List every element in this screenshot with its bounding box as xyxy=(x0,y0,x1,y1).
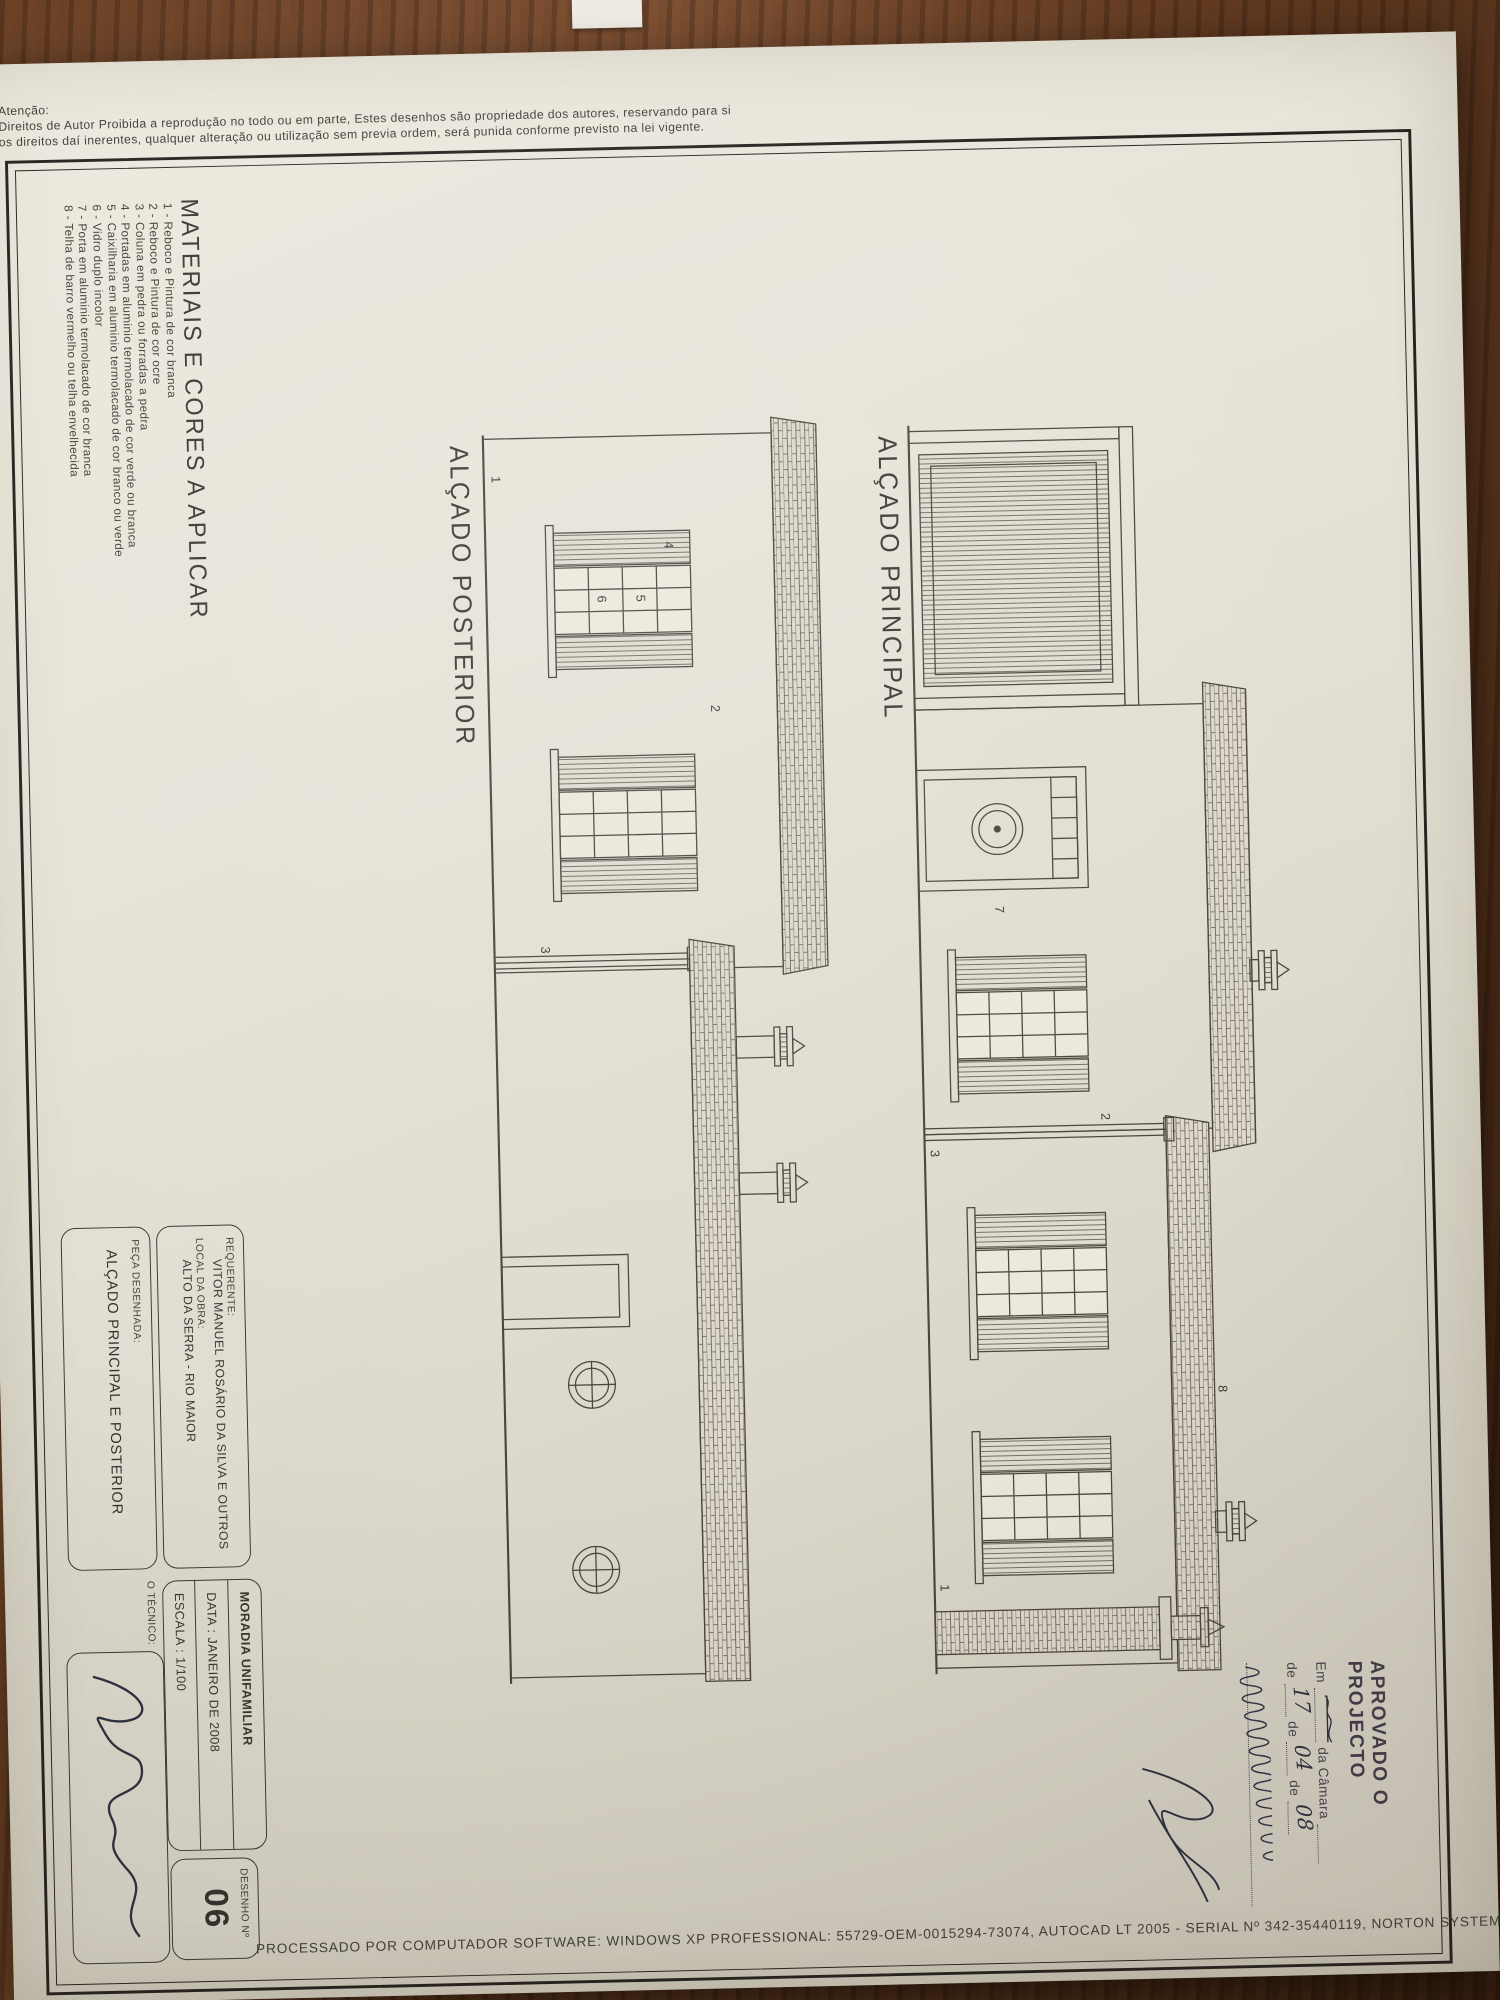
project-type: MORADIA UNIFAMILIAR xyxy=(228,1579,267,1848)
wing-roof-tiles xyxy=(1166,1115,1221,1671)
stamp-de-label: de xyxy=(1286,1721,1302,1737)
annotation-number: 4 xyxy=(661,541,675,548)
annotation-number: 6 xyxy=(594,595,608,602)
drawing-sheet-content: Atenção: Direitos de Autor Proibida a re… xyxy=(0,36,1494,2000)
copyright-note: Atenção: Direitos de Autor Proibida a re… xyxy=(0,86,778,150)
drawing-number-box: DESENHO Nº 06 xyxy=(170,1857,260,1960)
annotation-number: 3 xyxy=(538,946,552,953)
posterior-elevation-drawing: 1 2 4 5 6 3 xyxy=(463,410,881,1694)
shuttered-window xyxy=(947,947,1089,1102)
annotation-number: 2 xyxy=(708,705,722,712)
chimney-with-finial xyxy=(739,1163,808,1203)
peca-desenhada-box: PEÇA DESENHADA: ALÇADO PRINCIPAL E POSTE… xyxy=(60,1226,157,1571)
tecnico-signature-box xyxy=(66,1651,170,1965)
drawing-sheet-paper: Atenção: Direitos de Autor Proibida a re… xyxy=(0,31,1500,2000)
main-roof-tiles xyxy=(771,416,828,974)
underlying-sheet-corner xyxy=(572,0,643,29)
shuttered-window xyxy=(550,746,698,901)
annotation-number: 5 xyxy=(633,594,647,601)
stamp-strikethrough-scribble xyxy=(1319,1693,1336,1744)
shuttered-window xyxy=(972,1429,1114,1584)
chimney-with-finial xyxy=(1215,1501,1257,1541)
principal-elevation-title: ALÇADO PRINCIPAL xyxy=(872,436,909,721)
stamp-dotted-blank: 04 xyxy=(1286,1742,1299,1775)
annotation-number: 3 xyxy=(928,1150,942,1157)
photographed-architectural-drawing: Atenção: Direitos de Autor Proibida a re… xyxy=(0,0,1500,2000)
principal-elevation-drawing: 7 2 3 8 1 xyxy=(888,400,1306,1684)
annotation-number: 2 xyxy=(1098,1113,1112,1120)
peca-desenhada-value: ALÇADO PRINCIPAL E POSTERIOR xyxy=(103,1249,127,1557)
project-date: DATA : JANEIRO DE 2008 xyxy=(195,1580,234,1849)
wing-wall xyxy=(924,1129,1178,1668)
annotation-number: 1 xyxy=(488,476,502,483)
stamp-signature-line xyxy=(1246,1663,1274,1907)
stamp-dotted-blank xyxy=(1317,1824,1331,1863)
annotation-number: 7 xyxy=(992,906,1006,913)
project-info-box: MORADIA UNIFAMILIAR DATA : JANEIRO DE 20… xyxy=(162,1578,267,1851)
round-window xyxy=(568,1361,616,1409)
tecnico-signature-icon xyxy=(67,1652,169,1964)
drawing-number-label: DESENHO Nº xyxy=(238,1868,251,1948)
stamp-dotted-blank: 08 xyxy=(1287,1801,1300,1834)
back-door xyxy=(501,1254,629,1329)
entry-door xyxy=(916,767,1088,892)
stamp-de-label: de xyxy=(1284,1662,1300,1678)
approver-signature-icon xyxy=(1126,1747,1239,1917)
round-window xyxy=(572,1546,620,1594)
chimney-with-finial xyxy=(736,1026,805,1066)
approval-stamp: APROVADO O PROJECTO Em da Câmara de 17 xyxy=(1246,1660,1393,1918)
entrance-gate xyxy=(908,427,1138,711)
materials-legend: MATERIAIS E CORES A APLICAR 1 - Reboco e… xyxy=(61,198,217,805)
main-roof-tiles xyxy=(1202,681,1255,1151)
stamp-dotted-blank xyxy=(1314,1688,1328,1743)
handwritten-day: 17 xyxy=(1288,1686,1315,1713)
handwritten-month: 04 xyxy=(1290,1745,1317,1772)
stamp-de-label: de xyxy=(1287,1780,1303,1796)
annotation-number: 1 xyxy=(937,1584,951,1591)
stamp-dotted-blank: 17 xyxy=(1285,1683,1298,1716)
stamp-camara-label: da Câmara xyxy=(1315,1747,1332,1819)
tecnico-label: O TÉCNICO: xyxy=(144,1581,157,1646)
shuttered-window xyxy=(967,1205,1109,1360)
project-scale: ESCALA : 1/100 xyxy=(163,1581,202,1850)
chimney-with-finial xyxy=(1250,950,1290,990)
wing-roof-tiles xyxy=(689,938,751,1681)
annotation-number: 8 xyxy=(1215,1385,1229,1392)
handwritten-year: 08 xyxy=(1291,1804,1318,1831)
drawing-number-value: 06 xyxy=(196,1868,236,1949)
requerente-box: REQUERENTE: VITOR MANUEL ROSÁRIO DA SILV… xyxy=(156,1224,251,1569)
stamp-em-label: Em xyxy=(1313,1661,1329,1683)
approval-stamp-title: APROVADO O PROJECTO xyxy=(1343,1660,1393,1911)
peca-desenhada-label: PEÇA DESENHADA: xyxy=(129,1239,148,1557)
cursive-scribble-icon xyxy=(1239,1663,1274,1905)
